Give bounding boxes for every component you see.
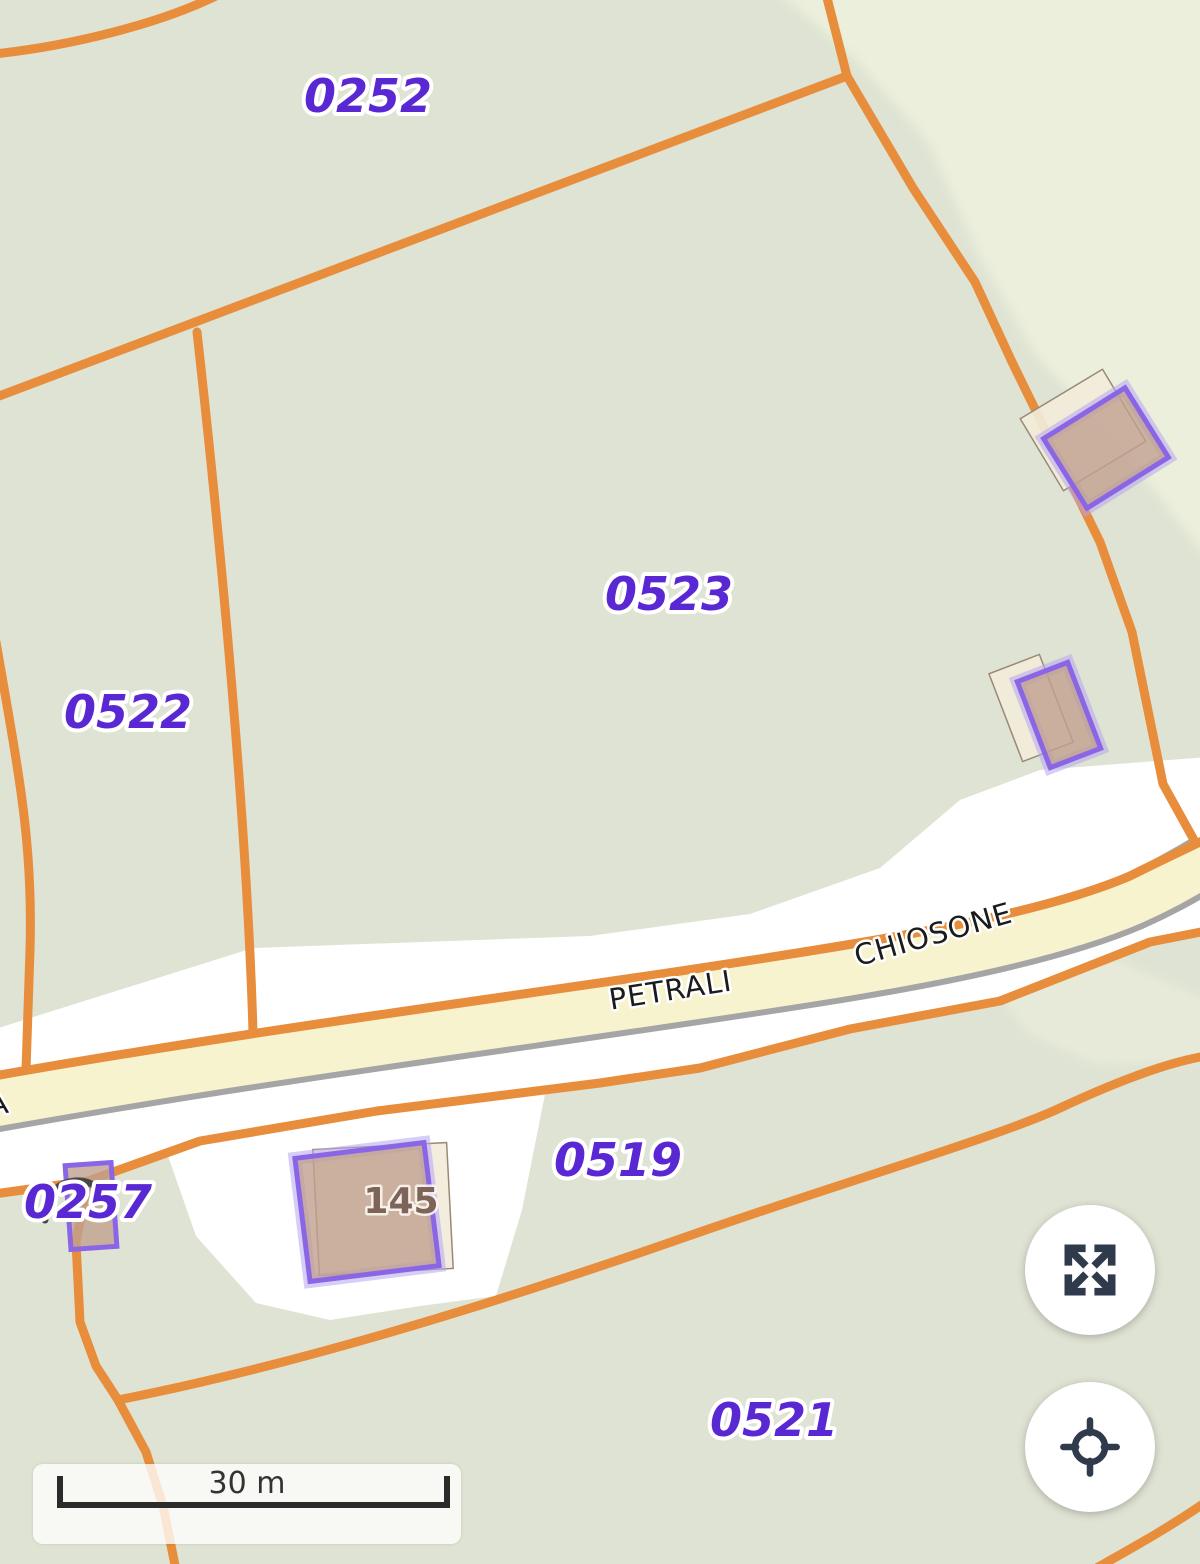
scale-bar-bracket [57,1476,450,1508]
parcel-label-0523: 0523 [605,567,733,621]
parcel-label-0521: 0521 [710,1393,838,1447]
parcel-label-0519: 0519 [554,1133,682,1187]
locate-crosshair-icon [1056,1413,1124,1481]
scale-bar: 30 m [33,1464,461,1544]
parcel-label-0257: 0257 [24,1175,152,1229]
building-number-145: 145 [363,1181,438,1222]
fullscreen-expand-icon [1056,1236,1124,1304]
map-viewport: PETRALI CHIOSONE A 145 0252 0522 0523 02… [0,0,1200,1564]
parcel-label-0252: 0252 [304,69,432,123]
parcel-label-0522: 0522 [64,685,192,739]
locate-button[interactable] [1025,1382,1155,1512]
map-canvas[interactable]: PETRALI CHIOSONE A 145 0252 0522 0523 02… [0,0,1200,1564]
fullscreen-button[interactable] [1025,1205,1155,1335]
